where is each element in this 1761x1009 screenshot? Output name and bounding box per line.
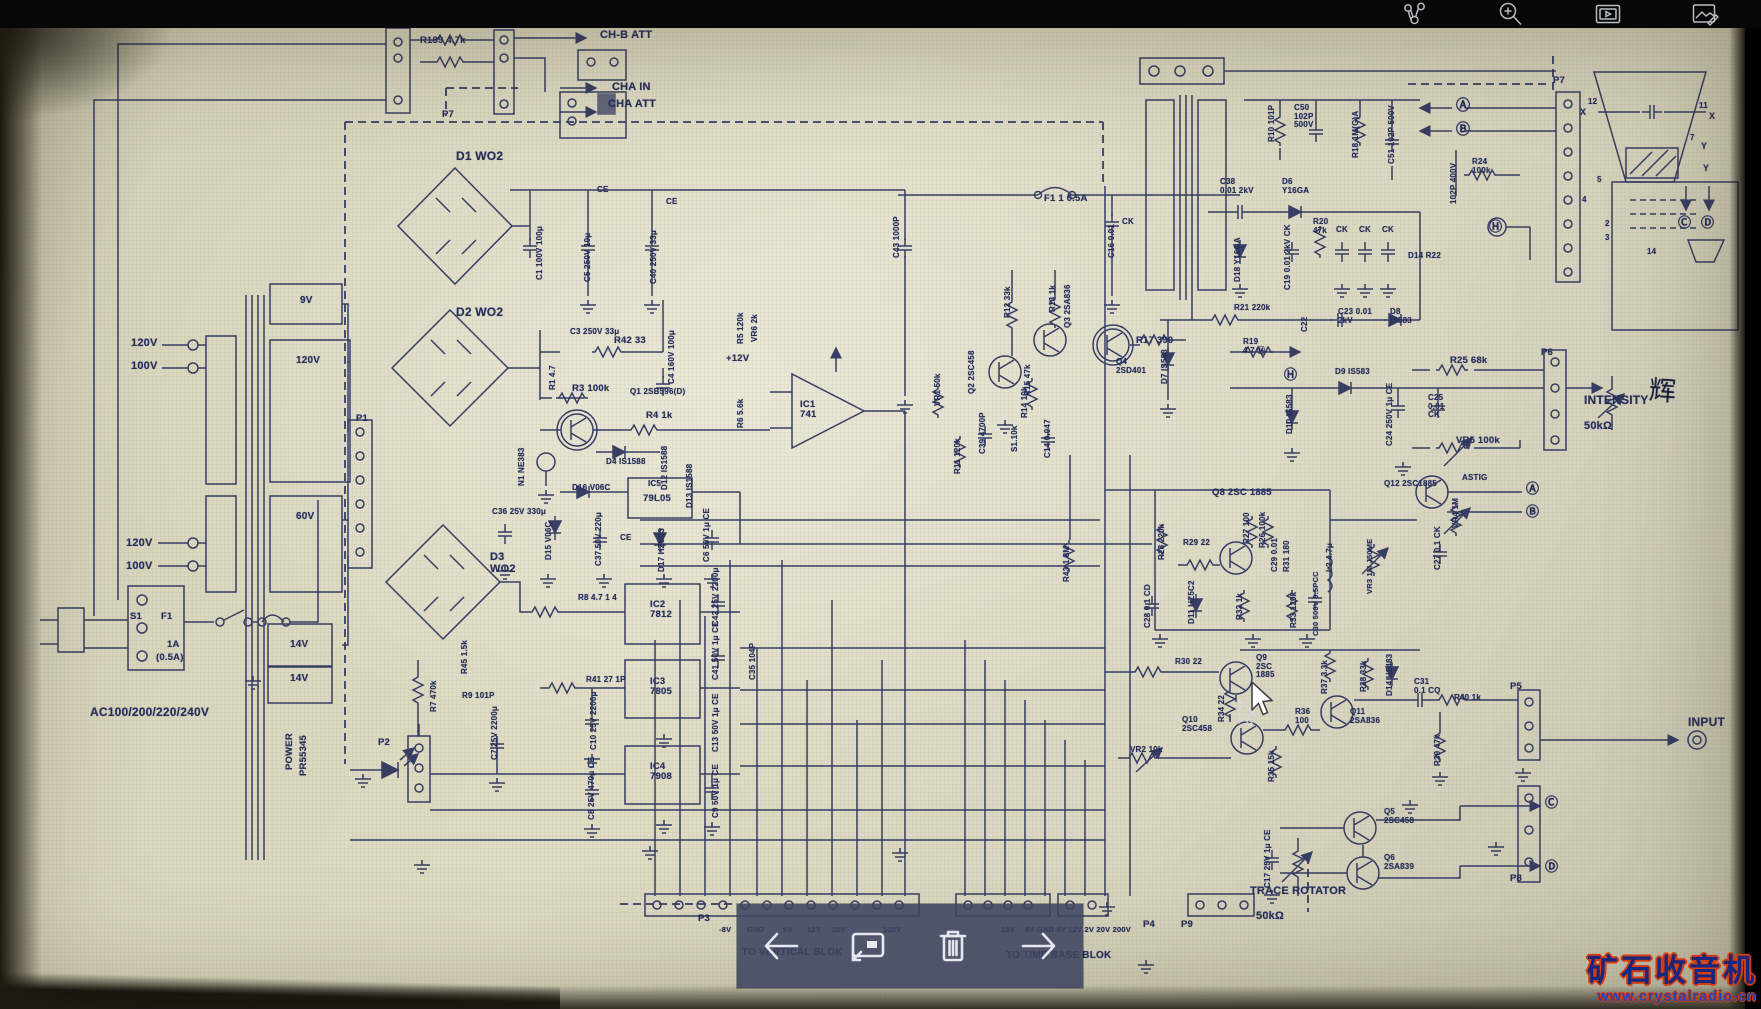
schematic-label: P3 <box>698 914 710 924</box>
share-icon[interactable] <box>1400 1 1428 27</box>
schematic-label: R38 33k <box>1360 660 1369 692</box>
schematic-label: INTENSITY <box>1584 394 1648 407</box>
schematic-label: D4 IS1588 <box>606 458 646 467</box>
schematic-label: R19 4.7 ⑭ <box>1243 338 1265 355</box>
schematic-label: 120V <box>296 356 320 367</box>
delete-photo-button[interactable] <box>931 924 975 968</box>
schematic-label: R10 101P <box>1268 105 1277 142</box>
schematic-label: R36 100 <box>1295 708 1310 725</box>
previous-photo-button[interactable] <box>759 924 803 968</box>
schematic-label: VR6 2k <box>751 314 760 342</box>
schematic-label: C19 0.01 2kV CK <box>1284 224 1293 290</box>
schematic-label: C1 100V 100μ <box>536 226 545 280</box>
schematic-label: 120V <box>126 538 153 550</box>
schematic-label: Q10 2SC458 <box>1182 716 1212 733</box>
schematic-label: C23 0.01 2kV <box>1338 308 1372 325</box>
schematic-label: 7 <box>1690 134 1695 143</box>
schematic-label: 100V <box>131 361 158 373</box>
schematic-label: 11 <box>1699 102 1708 111</box>
schematic-label: D3 WO2 <box>490 552 516 576</box>
schematic-label: Ⓐ <box>1456 98 1470 113</box>
schematic-label: Q12 2SC1885 <box>1384 480 1437 489</box>
schematic-label: C3 250V 33μ <box>570 328 619 337</box>
schematic-label: C30 500V 0.5PCC <box>1312 571 1320 636</box>
schematic-label: F1 1 0.5A <box>1044 194 1088 204</box>
schematic-label: Q4 2SD401 <box>1116 358 1146 375</box>
schematic-label: 2 <box>1605 220 1610 229</box>
schematic-label: Ⓓ <box>1701 216 1714 230</box>
schematic-label: 1A <box>167 640 180 650</box>
schematic-label: CK <box>1122 218 1134 227</box>
schematic-label: R12 33k <box>1004 286 1013 318</box>
schematic-label: R7 470k <box>430 680 439 712</box>
schematic-label: 12 <box>1588 98 1597 107</box>
schematic-label: R26 100k <box>1259 512 1268 548</box>
watermark: 矿石收音机 www.crystalradio.cn <box>1587 952 1757 1005</box>
schematic-label: R33 120k <box>1290 592 1299 628</box>
schematic-label: 120V <box>131 338 158 350</box>
schematic-label: P9 <box>1181 920 1193 930</box>
schematic-label: C13 50V 1μ CE <box>712 693 721 752</box>
schematic-label: C7 25V 2200μ <box>491 706 500 760</box>
schematic-label: N1 NE383 <box>518 447 527 486</box>
schematic-label: R37 3.3k <box>1321 660 1330 694</box>
schematic-label: D15 V06C <box>545 521 554 560</box>
schematic-label: D11 HZ5C2 <box>1188 580 1197 624</box>
schematic-label: CHA IN <box>612 82 651 94</box>
schematic-label: P8 <box>1510 874 1522 884</box>
schematic-label: VR4 1M <box>1452 498 1461 528</box>
schematic-label: 79L05 <box>643 494 671 504</box>
schematic-label: C27 0.1 CK <box>1434 526 1443 570</box>
schematic-label: R45 1.5k <box>461 640 470 674</box>
schematic-label: C25 0.01 CK <box>1428 394 1444 420</box>
schematic-label: Ⓗ <box>1489 220 1502 234</box>
schematic-label: R40 1k <box>1454 694 1481 703</box>
schematic-label: R42 33 <box>614 336 646 346</box>
schematic-label: C10 25V 2200μ <box>590 691 599 750</box>
schematic-label: Ⓒ <box>1545 796 1558 810</box>
schematic-label: C42 25V 2200μ <box>712 567 721 626</box>
schematic-label: 辉 <box>1648 376 1677 407</box>
schematic-label: R8 4.7 1 4 <box>578 594 617 603</box>
schematic-label: Ⓒ <box>1678 216 1691 230</box>
zoom-in-icon[interactable] <box>1497 1 1525 27</box>
watermark-title: 矿石收音机 <box>1587 952 1757 989</box>
schematic-label: C35 104P <box>749 643 758 680</box>
schematic-label: 14V <box>290 640 308 651</box>
schematic-label: CE <box>620 534 632 543</box>
schematic-label: C41 50V 1μ CE <box>712 621 721 680</box>
schematic-label: D12 IS1588 <box>661 446 670 490</box>
schematic-label: R25 68k <box>1450 356 1487 366</box>
schematic-label: R14 10k <box>1021 386 1030 418</box>
schematic-label: 9V <box>300 296 313 307</box>
schematic-label: R32 1k <box>1236 593 1245 620</box>
schematic-label: R11 120k <box>954 438 963 474</box>
schematic-label: Q3 2SA836 <box>1064 284 1073 328</box>
schematic-label: Y <box>1701 142 1707 152</box>
schematic-label: +12V <box>726 354 749 364</box>
schematic-label: IC2 7812 <box>650 600 672 621</box>
schematic-label: C39 4700P <box>979 412 988 454</box>
schematic-label: R35 15k <box>1268 750 1277 782</box>
schematic-label: 14 <box>1647 248 1656 257</box>
schematic-label: R24 100k <box>1472 158 1491 175</box>
schematic-label: 14V <box>290 674 308 685</box>
schematic-label: Ⓑ <box>1456 122 1470 137</box>
schematic-label: C6 50V 1μ CE <box>703 508 712 562</box>
schematic-label: R28 220k <box>1158 524 1167 560</box>
schematic-label: D1 WO2 <box>456 150 503 163</box>
schematic-label: R41 27 1P <box>586 676 626 685</box>
schematic-label: 102P 400V <box>1450 163 1459 204</box>
schematic-label: R3 100k <box>572 384 609 394</box>
schematic-label: Q8 2SC 1885 <box>1212 488 1272 498</box>
schematic-label: CE <box>597 186 609 195</box>
schematic-label: IC3 7805 <box>650 677 672 698</box>
schematic-label: C16 0.01 <box>1108 224 1117 258</box>
schematic-label: POWER <box>285 733 295 770</box>
schematic-label: D8 IS583 <box>1390 308 1412 325</box>
schematic-label: R31 180 <box>1283 540 1292 572</box>
schematic-label: R21 220k <box>1234 304 1270 313</box>
schematic-label: VR2 10k <box>1130 746 1163 755</box>
schematic-label: 50kΩ <box>1584 421 1612 433</box>
schematic-label: C22 <box>1301 317 1310 332</box>
schematic-label: VR1 50k <box>934 373 943 406</box>
schematic-label: Q2 2SC458 <box>968 350 977 394</box>
schematic-label: Q11 2SA836 <box>1350 708 1380 725</box>
schematic-label: P6 <box>1541 348 1553 358</box>
schematic-label: TRACE ROTATOR <box>1250 886 1346 898</box>
schematic-label: R4 1k <box>646 411 672 421</box>
schematic-label: S1.10k <box>1011 425 1020 452</box>
schematic-label: L2 4.7μ <box>1326 543 1335 572</box>
schematic-label: Q9 2SC 1885 <box>1256 654 1275 680</box>
mouse-cursor <box>1238 682 1280 733</box>
schematic-label: 5 <box>1597 176 1602 185</box>
schematic-label: R6 5.6k <box>737 399 746 428</box>
schematic-label: P5 <box>1510 682 1522 692</box>
schematic-label: Q5 2SC458 <box>1384 808 1414 825</box>
schematic-label: R34 22 <box>1218 695 1227 722</box>
schematic-label: C29 0.01 <box>1271 538 1280 572</box>
schematic-label: 60V <box>296 512 314 523</box>
schematic-label: VR3 1M J50ME <box>1366 539 1374 594</box>
schematic-label: R189 4.7k <box>420 36 466 46</box>
schematic-label: PR55345 <box>299 735 309 776</box>
schematic-label: P2 <box>378 738 390 748</box>
schematic-label: IC5 <box>648 480 661 489</box>
schematic-label: CK <box>1336 226 1348 235</box>
edit-image-icon[interactable] <box>1691 1 1719 27</box>
schematic-label: C50 102P 500V <box>1294 104 1313 130</box>
schematic-label: C5 250V 10μ <box>584 233 593 282</box>
schematic-label: P7 <box>1553 76 1565 86</box>
schematic-label: CHA ATT <box>608 99 656 111</box>
cast-to-screen-button[interactable] <box>845 924 889 968</box>
schematic-label: C28 0.1 CD <box>1144 584 1153 628</box>
schematic-label: P7 <box>442 110 454 120</box>
schematic-label: C24 250V 1μ CE <box>1386 383 1395 446</box>
schematic-label: IC1 741 <box>800 400 816 421</box>
schematic-label: Ⓐ <box>1526 482 1539 496</box>
schematic-label: X <box>1709 112 1715 122</box>
schematic-label: 50kΩ <box>1256 911 1284 923</box>
schematic-label: C8 25V 470μ CE <box>588 757 597 820</box>
schematic-label: IC4 7908 <box>650 762 672 783</box>
app-titlebar <box>0 0 1761 28</box>
schematic-label: Q6 2SA839 <box>1384 854 1414 871</box>
schematic-label: Ⓗ <box>1284 368 1297 382</box>
schematic-label: C37 50V 220μ <box>595 512 604 566</box>
schematic-label: -8V <box>719 926 731 934</box>
schematic-label: R9 101P <box>462 692 495 701</box>
schematic-label: 100V <box>126 561 153 573</box>
schematic-label: R27 100 <box>1243 512 1252 544</box>
schematic-label: R39 47k <box>1434 734 1443 766</box>
schematic-label: (0.5A) <box>156 653 184 663</box>
schematic-label: 3 <box>1605 234 1610 243</box>
schematic-label: Ⓓ <box>1545 860 1558 874</box>
schematic-label: D17 HZ6C3 <box>658 528 667 572</box>
photo-viewer-window: R189 4.7kP7CH-B ATTCHA INCHA ATT9V120V10… <box>0 0 1761 1009</box>
schematic-label: C9 50V 1μ CE <box>712 764 721 818</box>
schematic-label: P1 <box>356 414 368 424</box>
schematic-label: C14 0.047 <box>1044 419 1053 458</box>
schematic-label: P4 <box>1143 920 1155 930</box>
schematic-label: Ⓑ <box>1526 505 1539 519</box>
schematic-label: R30 22 <box>1175 658 1202 667</box>
schematic-label: AC100/200/220/240V <box>90 706 209 719</box>
schematic-label: C51 102P 500V <box>1388 105 1397 164</box>
schematic-label: D13 IS1588 <box>686 464 695 508</box>
schematic-label: CK <box>1382 226 1394 235</box>
schematic-label: D6 Y16GA <box>1282 178 1309 195</box>
schematic-label: Y <box>1703 164 1709 174</box>
schematic-label: CE <box>666 198 678 207</box>
schematic-label: ASTIG <box>1462 474 1487 483</box>
schematic-label: C36 25V 330μ <box>492 508 546 517</box>
schematic-label: X <box>1580 108 1586 118</box>
schematic-label: INPUT <box>1688 716 1725 729</box>
schematic-labels-layer: R189 4.7kP7CH-B ATTCHA INCHA ATT9V120V10… <box>0 28 1745 1009</box>
schematic-label: D16 V06C <box>572 484 611 493</box>
watermark-url: www.crystalradio.cn <box>1587 989 1757 1005</box>
schematic-label: R20 47k <box>1313 218 1328 235</box>
schematic-label: C40 250V 33μ <box>650 230 659 284</box>
schematic-label: D10 IS583 <box>1286 394 1295 434</box>
schematic-label: C4 160V 100μ <box>668 330 677 384</box>
schematic-label: 4 <box>1582 196 1587 205</box>
schematic-label: D9 IS583 <box>1335 368 1370 377</box>
schematic-label: R13 1k <box>1049 285 1058 312</box>
schematic-label: C38 0.01 2kV <box>1220 178 1254 195</box>
slideshow-icon[interactable] <box>1594 1 1622 27</box>
schematic-label: Q1 2SB596(D) <box>630 388 685 397</box>
schematic-label: C31 0.1 CQ <box>1414 678 1441 695</box>
schematic-label: R18 1M(G)A <box>1352 111 1361 158</box>
schematic-label: D7 IS583 <box>1161 349 1170 384</box>
schematic-label: D2 WO2 <box>456 306 503 319</box>
schematic-label: S1 <box>130 612 142 622</box>
schematic-label: R5 120k <box>737 312 746 344</box>
schematic-label: VR5 100k <box>1456 436 1500 446</box>
schematic-label: R29 22 <box>1183 539 1210 548</box>
schematic-label: D14 H2483 <box>1386 654 1395 696</box>
schematic-label: CH-B ATT <box>600 30 652 42</box>
schematic-label: R1 4.7 <box>549 365 558 390</box>
schematic-label: CK <box>1359 226 1371 235</box>
schematic-label: R17 390 <box>1136 336 1173 346</box>
schematic-label: D14 R22 <box>1408 252 1441 261</box>
titlebar-icon-group <box>1400 1 1719 27</box>
schematic-label: C43 1000P <box>893 216 902 258</box>
schematic-label: D18 Y16GA <box>1234 237 1243 282</box>
schematic-label: C17 25V 1μ CE <box>1264 829 1273 888</box>
schematic-label: R43 1.8M <box>1063 546 1072 582</box>
photo-canvas[interactable]: R189 4.7kP7CH-B ATTCHA INCHA ATT9V120V10… <box>0 28 1745 1009</box>
viewer-toolbar <box>737 904 1083 988</box>
schematic-label: F1 <box>161 612 173 622</box>
next-photo-button[interactable] <box>1017 924 1061 968</box>
